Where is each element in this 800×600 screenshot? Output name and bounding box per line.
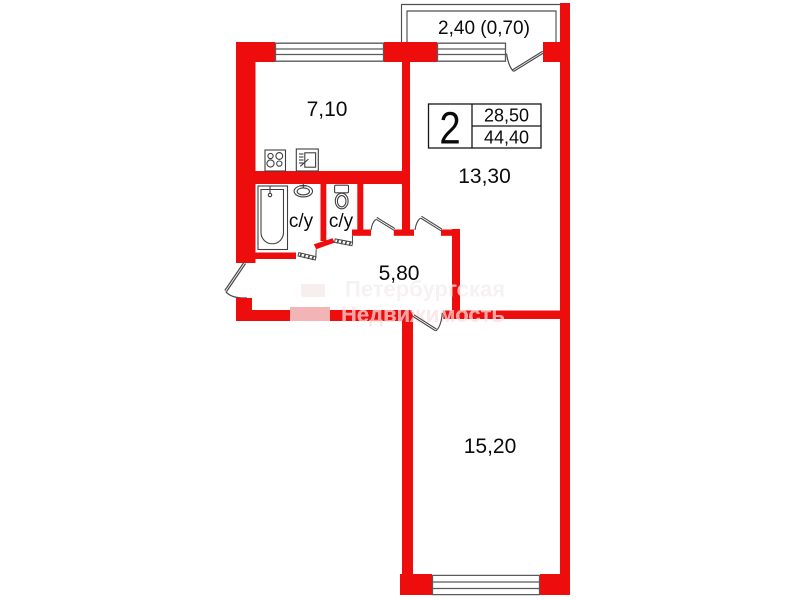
- svg-text:с/у: с/у: [329, 211, 354, 232]
- svg-text:7,10: 7,10: [307, 98, 348, 121]
- svg-text:44,40: 44,40: [484, 128, 529, 148]
- svg-text:с/у: с/у: [289, 211, 314, 232]
- svg-text:2: 2: [439, 103, 460, 154]
- svg-text:Петербургская: Петербургская: [345, 277, 505, 302]
- svg-text:2,40 (0,70): 2,40 (0,70): [438, 18, 530, 39]
- svg-text:13,30: 13,30: [458, 165, 511, 188]
- svg-text:15,20: 15,20: [464, 435, 517, 458]
- svg-text:28,50: 28,50: [484, 106, 529, 126]
